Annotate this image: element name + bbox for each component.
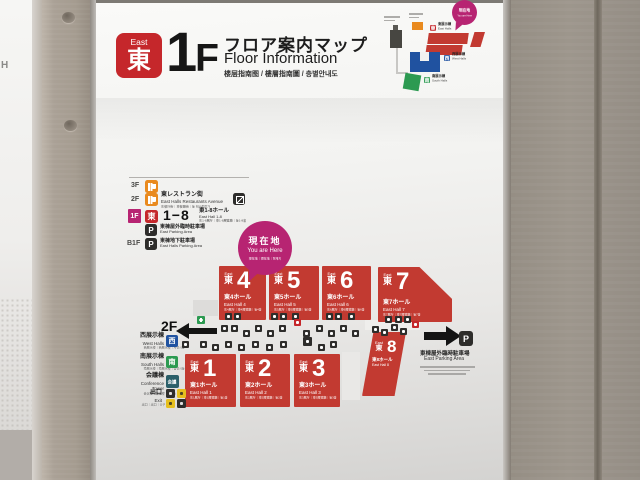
facility-icon [400,328,407,335]
hall-name-ja: 東2ホール [245,383,290,391]
legend-2f-label: 2F [131,196,139,203]
parking-icon: P [145,224,157,236]
hall-name: 東5ホール East Hall 5 东5展厅｜東5展覽廳｜동5홀 [269,295,319,314]
facility-icon [252,341,259,348]
hall-east-ja: 東 [299,364,308,374]
east-chip-icon: 東 [145,210,158,223]
facility-icon [372,326,379,333]
west-halls-multilang: 西展示楼｜西展示樓｜서전시동 [144,346,164,350]
concrete-wall [511,0,640,480]
legend-2f-ja: 東レストラン街 [161,192,240,199]
facility-icon [212,344,219,351]
minimap-label-smudge [409,13,423,15]
south-chip-icon: 南 [166,356,178,368]
facility-icon [381,329,388,336]
facility-icon [280,313,287,320]
hall-name-multilang: 东3展厅｜東3展覽廳｜동3홀 [299,396,324,400]
facility-icon [328,330,335,337]
legend-2f-en: East Halls Restaurants Avenue [161,199,240,204]
minimap-label-smudge [384,16,400,18]
facility-icon [352,330,359,337]
facility-icon [385,316,392,323]
hall-east-6: East東 6 東6ホール East Hall 6 东6展厅｜東6展覽廳｜동6홀 [322,266,371,320]
hall-east-1: East東 1 東1ホール East Hall 1 东1展厅｜東1展覽廳｜동1홀 [185,354,236,407]
south-halls-multilang: 南展示楼｜南展示樓｜남전시동 [144,367,164,371]
restaurant-icon [145,193,158,206]
hall-name-multilang: 东2展厅｜東2展覽廳｜동2홀 [245,396,272,400]
exit-ja: 出口 [128,390,162,398]
parking-note-smudge [428,373,466,375]
minimap-label-smudge [409,17,419,19]
minimap-east-hall7 [470,32,485,47]
hall-head: East東 1 [185,354,236,381]
hall-number: 3 [312,358,325,381]
corridor-block [193,300,218,316]
minimap-east-chip: 東 [430,25,436,31]
first-aid-icon [197,316,205,324]
facility-icon [238,344,245,351]
exit-label: 出口 Exit 出口｜出口｜출구 [128,390,162,409]
hall-name-multilang: 东5展厅｜東5展覽廳｜동5홀 [274,308,301,312]
conference-chip-icon: 会議 [166,375,179,388]
minimap-south-halls [403,73,422,92]
facility-icon [182,341,189,348]
facility-icon [303,330,310,337]
page-title-en: Floor Information [224,50,337,67]
hall-name: 東4ホール East Hall 4 东4展厅｜東4展覽廳｜동4홀 [219,295,266,314]
legend-b1f-text: 東棟地下駐車場 East Halls Parking Area [160,238,202,249]
minimap-you-are-here-pointer [453,22,463,32]
hall-number: 5 [287,270,300,293]
bus-icon [177,399,186,408]
facility-icon [318,344,325,351]
parking-note-smudge [420,366,475,368]
photo-of-floor-info-sign: H East 東 1 F フロア案内マップ Floor Information … [0,0,640,480]
hall-east-2: East東 2 東2ホール East Hall 2 东2展厅｜東2展覽廳｜동2홀 [240,354,290,407]
facility-icon [255,325,262,332]
parking-note-smudge [424,370,470,372]
hall-east-ja: 東 [327,276,336,286]
hall-east-ja: 東 [224,276,233,286]
minimap-walkway [396,48,398,74]
floor-number: 1 F [166,24,219,80]
legend-b1f-en: East Halls Parking Area [160,244,202,249]
bus-icon [166,389,175,398]
taxi-icon [177,389,186,398]
arrow-right-shaft [424,332,446,340]
hall-east-ja: 東 [245,364,254,374]
minimap-west-en: West Halls [452,57,466,60]
west-chip-icon: 西 [166,335,178,347]
south-halls-label: 南展示棟 South Halls 南展示楼｜南展示樓｜남전시동 [130,354,164,373]
hall-name-ja: 東6ホール [327,295,371,303]
legend-1f-multilang: 东1-8展厅｜東1-8展覽廳｜동1-8홀 [199,219,246,223]
legend-divider [129,177,249,178]
facility-icon [340,325,347,332]
facility-icon [395,316,402,323]
hall-name: 東3ホール East Hall 3 东3展厅｜東3展覽廳｜동3홀 [294,383,340,402]
service-corridor [342,352,360,400]
floor-2f-label: 2F [161,318,177,334]
facility-icon [271,313,278,320]
parking-area-en: East Parking Area [424,356,464,362]
hall-name-ja: 東5ホール [274,295,319,303]
hall-name-ja: 東3ホール [299,383,340,391]
parking-icon: P [145,238,157,250]
panel-gap-shadow [32,0,42,480]
west-halls-ja: 西展示棟 [130,333,164,341]
you-are-here-multilang: 现在地｜現在地｜현재지 [249,256,281,260]
minimap-east-label: 東展示棟 East Halls [438,23,451,30]
minimap-west-halls-notch [420,52,429,61]
facility-icon [391,324,398,331]
east-badge: East 東 [116,33,162,78]
you-are-here-ja: 現在地 [248,234,281,247]
minimap-label-smudge [384,20,395,22]
hall-name-multilang: 东4展厅｜東4展覽廳｜동4홀 [224,308,249,312]
hall-number: 6 [340,270,353,293]
facility-icon [200,341,207,348]
facility-icon [225,313,232,320]
hall-head: East東 6 [322,266,371,293]
adjacent-sign-text: H [1,60,8,71]
facility-icon [267,330,274,337]
facility-icon [266,344,273,351]
you-are-here-bubble: 現在地 You are Here 现在地｜現在地｜현재지 [238,221,292,275]
hall-name-multilang: 东1展厅｜東1展覽廳｜동1홀 [190,396,218,400]
concrete-pillar [42,0,90,480]
fire-equipment-icon [294,319,301,326]
hall-east-ja: 東 [383,277,392,287]
facility-icon [316,325,323,332]
hall-name-ja: 東1ホール [190,383,236,391]
minimap-conference-tower [390,30,402,48]
facility-icon [231,325,238,332]
hall-east-ja: 東 [274,276,283,286]
conference-ja: 会議棟 [130,373,164,381]
minimap-yah-en: You are Here [457,14,472,17]
arrow-left-shaft [189,328,217,334]
hall-name-ja: 東7ホール [383,300,452,308]
you-are-here-en: You are Here [247,248,282,254]
east-badge-ja: 東 [127,48,151,73]
hall-east-5: East東 5 東5ホール East Hall 5 东5展厅｜東5展覽廳｜동5홀 [269,266,319,320]
taxi-icon [166,399,175,408]
legend-b1f-label: B1F [127,240,140,247]
minimap-south-label: 南展示棟 South Halls [432,75,447,82]
hall-name: 東1ホール East Hall 1 东1展厅｜東1展覽廳｜동1홀 [185,383,236,402]
hall-head: East東 2 [240,354,290,381]
minimap-yah-ja: 現在地 [459,7,470,12]
conference-chip-text: 会議 [168,378,177,384]
minimap-conference-tower-top [393,25,398,30]
adjacent-sign-base [0,430,32,480]
hall-name: 東2ホール East Hall 2 东2展厅｜東2展覽廳｜동2홀 [240,383,290,402]
exit-multilang: 出口｜出口｜출구 [142,403,162,407]
facility-icon [225,341,232,348]
wall-joint-groove [594,0,602,480]
facility-icon [404,316,411,323]
page-title-multilang: 楼层指南图 / 樓層指南圖 / 층별안내도 [224,69,338,79]
minimap-south-chip: 南 [424,77,430,83]
hall-east-ja: 東 [376,345,383,353]
form-tie-hole [62,12,75,23]
west-halls-label: 西展示棟 West Halls 西展示楼｜西展示樓｜서전시동 [130,333,164,352]
facility-icon [234,313,241,320]
adjacent-sign-texture [0,298,32,432]
minimap-south-en: South Halls [432,79,447,82]
current-floor-chip: 1F [128,209,141,223]
legend-3f-label: 3F [131,182,139,189]
hall-number: 1 [203,358,216,381]
facility-icon [335,313,342,320]
south-halls-ja: 南展示棟 [130,354,164,362]
minimap-west-label: 西展示棟 West Halls [452,53,466,60]
legend-1f-parking-en: East Parking Area [160,230,205,235]
facility-icon [330,341,337,348]
restaurant-icon [145,180,158,193]
sign-light-sheen [96,98,506,144]
minimap-restaurant-block [412,22,423,30]
hall-east-ja: 東 [190,364,199,374]
hall-name-multilang: 东6展厅｜東6展覽廳｜동6홀 [327,308,353,312]
parking-icon: P [459,331,473,346]
hall-name: 東6ホール East Hall 6 东6展厅｜東6展覽廳｜동6홀 [322,295,371,314]
fire-equipment-icon [412,321,419,328]
facility-icon [326,313,333,320]
shop-icon [233,193,245,205]
legend-hall-range: 1−8 [163,207,190,223]
facility-icon [243,330,250,337]
legend-1f-parking-text: 東棟屋外臨時駐車場 East Parking Area [160,224,205,235]
hall-east-3: East東 3 東3ホール East Hall 3 东3展厅｜東3展覽廳｜동3홀 [294,354,340,407]
hall-head: East東 3 [294,354,340,381]
minimap-east-en: East Halls [438,27,451,30]
facility-icon [279,325,286,332]
form-tie-hole [64,120,77,131]
floor-letter: F [195,39,219,78]
facility-icon [221,325,228,332]
floor-digit: 1 [166,24,195,80]
hall-number: 8 [387,339,396,355]
minimap-west-chip: 西 [444,55,450,61]
hall-number: 7 [396,271,409,294]
hall-name-ja: 東4ホール [224,295,266,303]
facility-icon [348,313,355,320]
hall-number: 2 [258,358,271,381]
overview-minimap: 東 東展示棟 East Halls 西 西展示棟 West Halls 南 南展… [380,0,506,98]
info-icon [303,337,312,346]
facility-icon [280,341,287,348]
minimap-east-halls-upper [427,33,469,44]
